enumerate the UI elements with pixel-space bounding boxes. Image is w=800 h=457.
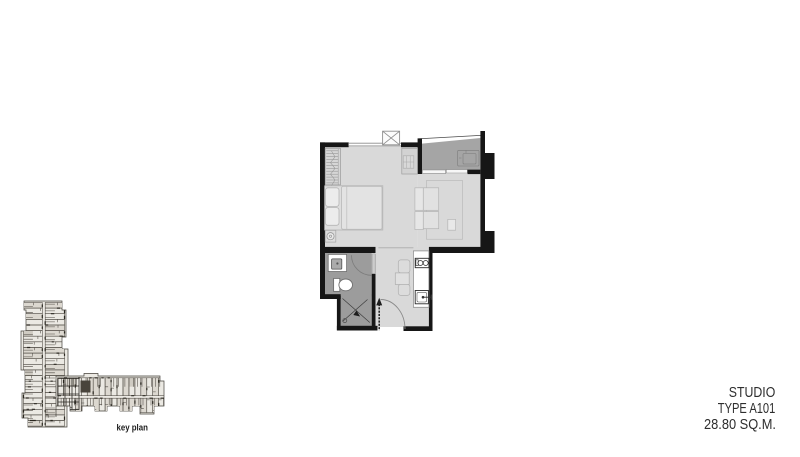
svg-text:TYPE A101: TYPE A101 <box>718 401 776 417</box>
svg-text:STUDIO: STUDIO <box>729 385 776 401</box>
svg-text:key plan: key plan <box>116 422 148 433</box>
svg-text:28.80 SQ.M.: 28.80 SQ.M. <box>704 417 776 433</box>
